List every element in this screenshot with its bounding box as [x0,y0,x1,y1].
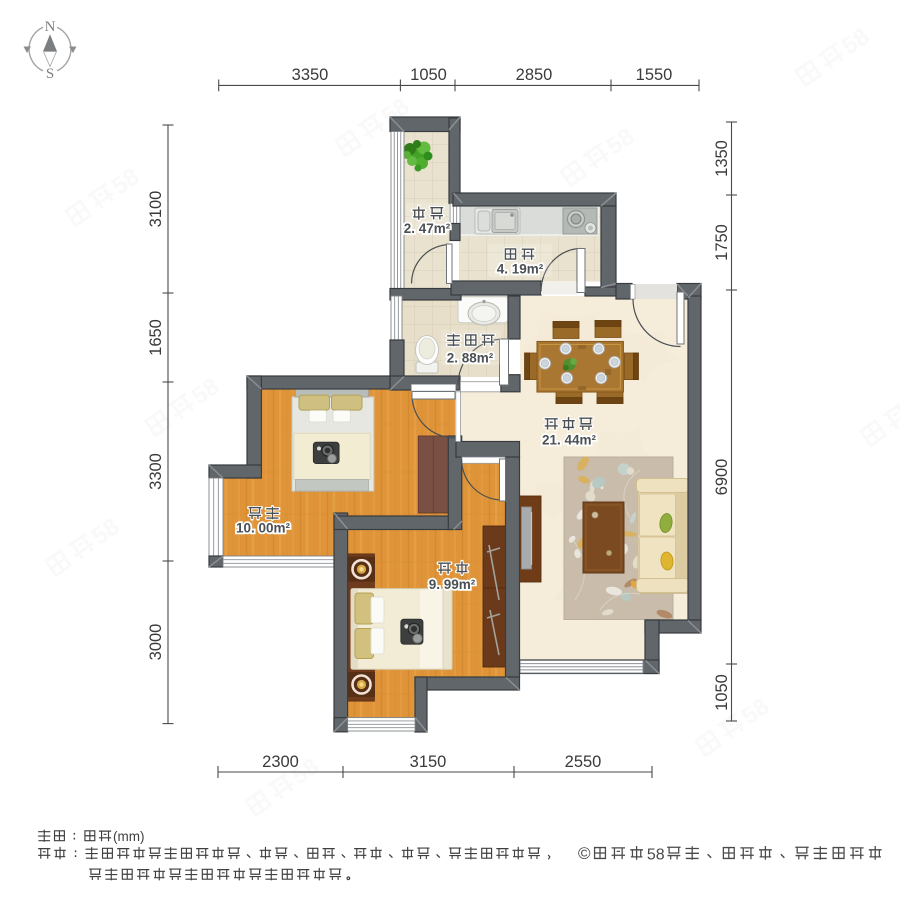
svg-text:2550: 2550 [565,753,602,771]
svg-text:1750: 1750 [713,224,731,261]
svg-text:2850: 2850 [516,66,553,84]
svg-text:2. 47m²: 2. 47m² [404,221,451,236]
svg-text:1350: 1350 [713,140,731,177]
svg-text:1050: 1050 [713,674,731,711]
svg-text:3100: 3100 [147,191,165,228]
svg-text:58: 58 [647,847,665,864]
svg-text:3300: 3300 [147,453,165,490]
svg-text:10. 00m²: 10. 00m² [236,521,291,536]
svg-text:9. 99m²: 9. 99m² [429,577,476,592]
svg-text:6900: 6900 [713,459,731,496]
svg-text:3350: 3350 [292,66,329,84]
svg-text:1550: 1550 [636,66,673,84]
svg-text:3150: 3150 [410,753,447,771]
svg-text:S: S [46,66,54,82]
svg-text:N: N [45,19,56,35]
svg-text:1650: 1650 [147,319,165,356]
svg-text:21. 44m²: 21. 44m² [542,433,597,448]
svg-text:4. 19m²: 4. 19m² [497,262,544,277]
svg-text:1050: 1050 [410,66,447,84]
svg-text:2. 88m²: 2. 88m² [447,351,494,366]
svg-text:(mm): (mm) [113,829,144,844]
svg-text:3000: 3000 [147,624,165,661]
svg-text:2300: 2300 [262,753,299,771]
svg-text:©: © [578,844,591,863]
